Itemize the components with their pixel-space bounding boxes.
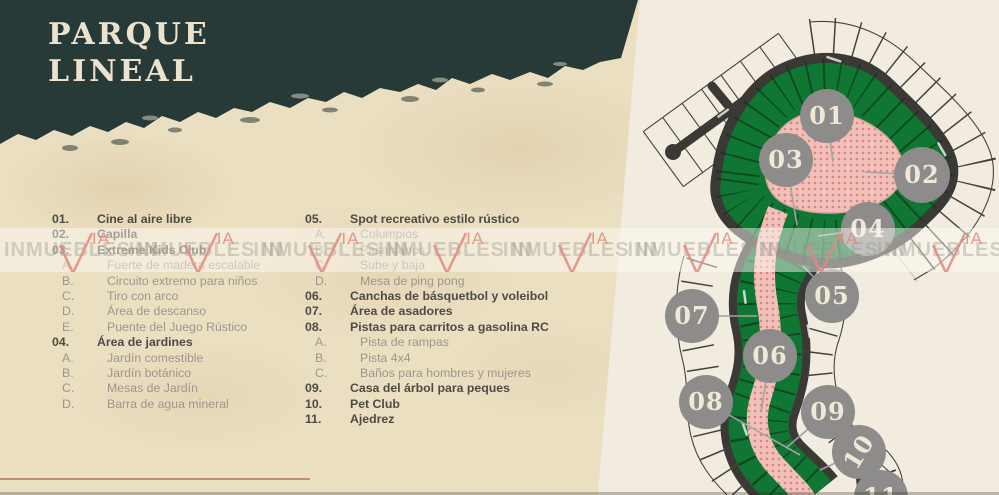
map-marker-08: 08	[679, 375, 733, 429]
via-logo: IA	[432, 229, 492, 271]
page-title: PARQUE LINEAL	[48, 16, 210, 90]
page-title-line2: LINEAL	[48, 53, 210, 90]
list-item: 06.Canchas de básquetbol y voleibol	[305, 289, 605, 304]
item-number: 01.	[52, 212, 97, 227]
list-item: 11.Ajedrez	[305, 412, 605, 427]
item-number: 06.	[305, 289, 350, 304]
list-item: 04.Área de jardines	[52, 335, 302, 350]
item-number: B.	[305, 351, 360, 366]
via-logo: IA	[931, 229, 991, 271]
list-subitem: C.Mesas de Jardín	[52, 381, 302, 396]
list-item: 07.Área de asadores	[305, 304, 605, 319]
item-label: Área de asadores	[350, 304, 453, 319]
item-number: E.	[52, 320, 107, 335]
item-number: B.	[52, 274, 107, 289]
item-label: Tiro con arco	[107, 289, 178, 304]
item-number: 08.	[305, 320, 350, 335]
via-logo-text: IA	[217, 229, 235, 249]
item-number: A.	[52, 351, 107, 366]
via-logo-text: IA	[341, 229, 359, 249]
via-logo: IA	[307, 229, 367, 271]
list-item: 10.Pet Club	[305, 397, 605, 412]
item-number: D.	[305, 274, 360, 289]
via-logo: IA	[806, 229, 866, 271]
watermark-unit: INMUEBLES INIA	[877, 228, 995, 272]
divider-line	[0, 478, 310, 480]
item-label: Jardín comestible	[107, 351, 203, 366]
item-number: 11.	[305, 412, 350, 427]
list-subitem: B.Pista 4x4	[305, 351, 605, 366]
list-item: 08.Pistas para carritos a gasolina RC	[305, 320, 605, 335]
item-label: Puente del Juego Rústico	[107, 320, 247, 335]
item-label: Mesas de Jardín	[107, 381, 198, 396]
list-subitem: B.Circuito extremo para niños	[52, 274, 302, 289]
via-logo-text: IA	[466, 229, 484, 249]
item-number: 09.	[305, 381, 350, 396]
item-label: Pista de rampas	[360, 335, 449, 350]
map-marker-05: 05	[805, 269, 859, 323]
list-item: 01.Cine al aire libre	[52, 212, 302, 227]
item-number: C.	[52, 381, 107, 396]
item-number: 10.	[305, 397, 350, 412]
via-logo: IA	[557, 229, 617, 271]
list-subitem: C.Baños para hombres y mujeres	[305, 366, 605, 381]
list-subitem: D.Área de descanso	[52, 304, 302, 319]
svg-text:03: 03	[768, 145, 803, 174]
list-subitem: E.Puente del Juego Rústico	[52, 320, 302, 335]
via-logo: IA	[58, 229, 118, 271]
svg-text:05: 05	[814, 281, 849, 310]
item-label: Pistas para carritos a gasolina RC	[350, 320, 549, 335]
watermark-unit: INMUEBLES INIA	[253, 228, 371, 272]
watermark-unit: INMUEBLES INIA	[378, 228, 496, 272]
item-label: Jardín botánico	[107, 366, 191, 381]
item-label: Spot recreativo estilo rústico	[350, 212, 519, 227]
via-logo-text: IA	[92, 229, 110, 249]
item-number: C.	[52, 289, 107, 304]
watermark-unit: INMUEBLES INIA	[4, 228, 122, 272]
item-label: Pet Club	[350, 397, 400, 412]
item-label: Cine al aire libre	[97, 212, 192, 227]
item-label: Área de jardines	[97, 335, 193, 350]
item-number: C.	[305, 366, 360, 381]
svg-text:08: 08	[688, 387, 723, 416]
map-marker-01: 01	[800, 89, 854, 143]
list-subitem: D.Barra de agua mineral	[52, 397, 302, 412]
item-number: B.	[52, 366, 107, 381]
item-label: Pista 4x4	[360, 351, 411, 366]
list-subitem: C.Tiro con arco	[52, 289, 302, 304]
item-label: Barra de agua mineral	[107, 397, 229, 412]
svg-text:02: 02	[904, 160, 939, 189]
item-label: Mesa de ping pong	[360, 274, 465, 289]
item-number: D.	[52, 397, 107, 412]
map-marker-06: 06	[743, 329, 797, 383]
item-label: Casa del árbol para peques	[350, 381, 510, 396]
item-number: 04.	[52, 335, 97, 350]
list-subitem: A.Jardín comestible	[52, 351, 302, 366]
list-subitem: A.Pista de rampas	[305, 335, 605, 350]
svg-text:06: 06	[752, 341, 787, 370]
svg-text:07: 07	[674, 301, 709, 330]
map-marker-03: 03	[759, 133, 813, 187]
via-logo-text: IA	[591, 229, 609, 249]
item-label: Área de descanso	[107, 304, 206, 319]
item-label: Canchas de básquetbol y voleibol	[350, 289, 548, 304]
list-item: 05.Spot recreativo estilo rústico	[305, 212, 605, 227]
item-label: Baños para hombres y mujeres	[360, 366, 531, 381]
item-number: 05.	[305, 212, 350, 227]
via-logo-text: IA	[840, 229, 858, 249]
map-marker-07: 07	[665, 289, 719, 343]
item-label: Circuito extremo para niños	[107, 274, 257, 289]
watermark-band: INMUEBLES INIA INMUEBLES INIA INMUEBLES …	[0, 228, 999, 272]
watermark-unit: INMUEBLES INIA	[503, 228, 621, 272]
via-logo: IA	[183, 229, 243, 271]
watermark-unit: INMUEBLES INIA	[752, 228, 870, 272]
list-subitem: B.Jardín botánico	[52, 366, 302, 381]
watermark-unit: INMUEBLES INIA	[129, 228, 247, 272]
svg-text:01: 01	[809, 101, 844, 130]
via-logo-text: IA	[716, 229, 734, 249]
page-title-line1: PARQUE	[48, 16, 210, 53]
watermark-unit: INMUEBLES INIA	[628, 228, 746, 272]
via-logo: IA	[682, 229, 742, 271]
item-number: D.	[52, 304, 107, 319]
map-marker-02: 02	[894, 147, 950, 203]
slide: PARQUE LINEAL 01.Cine al aire libre 02.C…	[0, 0, 999, 495]
via-logo-text: IA	[965, 229, 983, 249]
list-item: 09.Casa del árbol para peques	[305, 381, 605, 396]
svg-text:09: 09	[810, 397, 845, 426]
list-subitem: D.Mesa de ping pong	[305, 274, 605, 289]
item-number: 07.	[305, 304, 350, 319]
item-label: Ajedrez	[350, 412, 394, 427]
item-number: A.	[305, 335, 360, 350]
